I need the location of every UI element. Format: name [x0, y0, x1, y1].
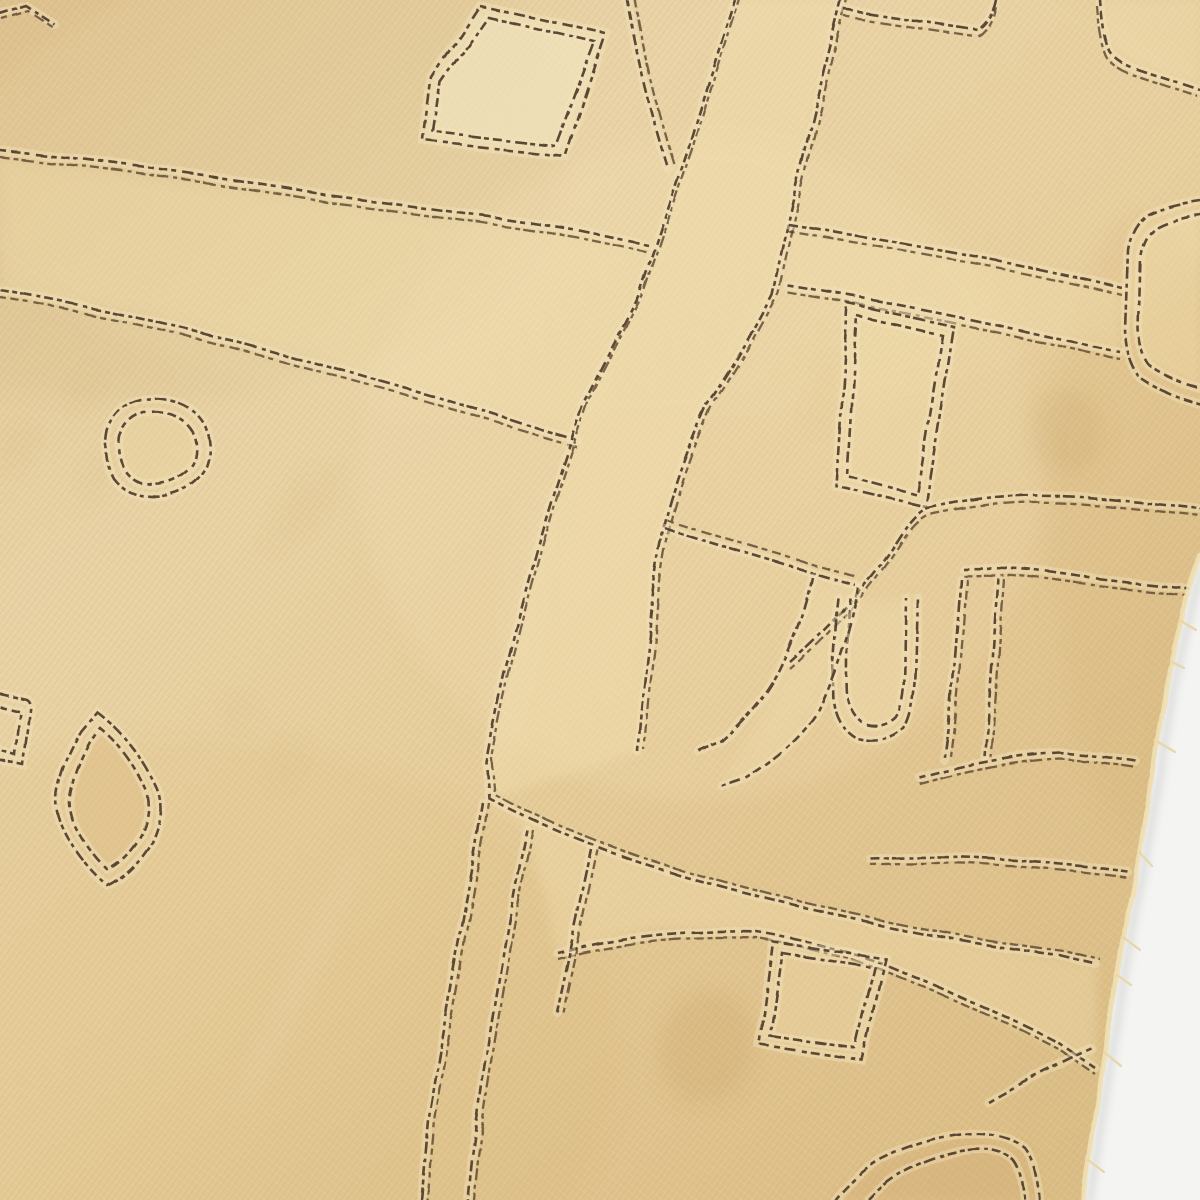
- textile-photo-canvas: [0, 0, 1200, 1200]
- stain-dot: [228, 700, 252, 724]
- textile-photograph: [0, 0, 1200, 1200]
